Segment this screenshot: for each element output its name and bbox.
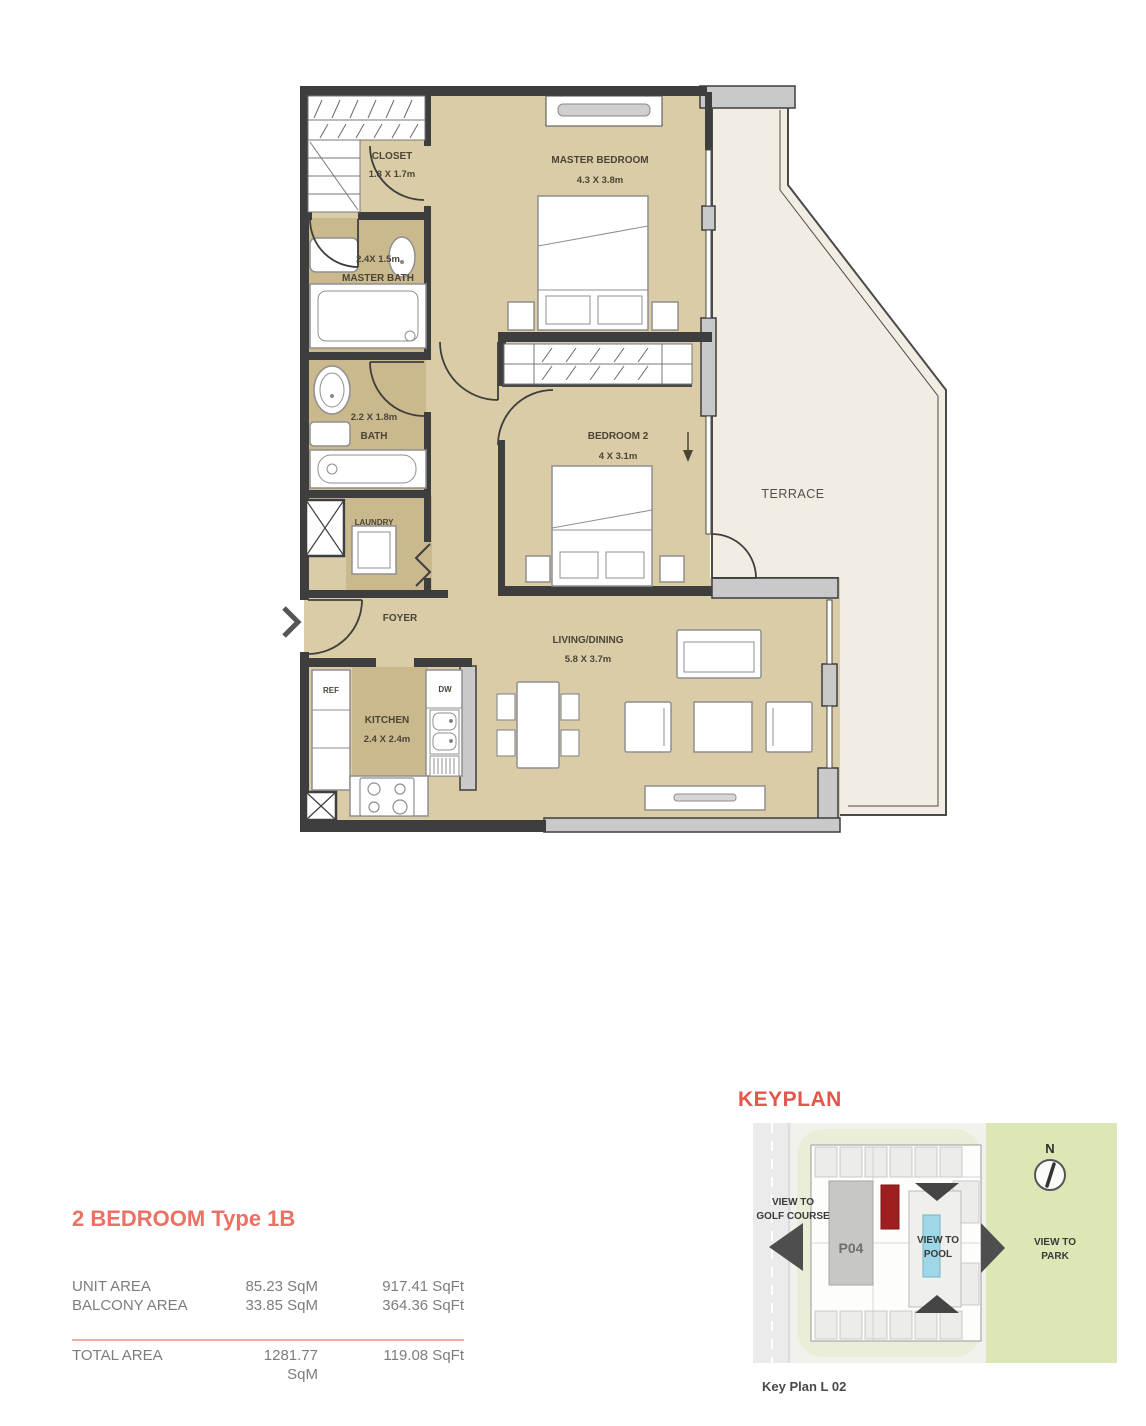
bath-label: BATH xyxy=(360,431,387,442)
window-master-1 xyxy=(706,150,711,206)
nightstand xyxy=(508,302,534,330)
unit-title: 2 BEDROOM Type 1B xyxy=(72,1206,295,1232)
window-living-2 xyxy=(827,706,832,768)
bedroom2-bed xyxy=(552,466,652,586)
bath-dims: 2.2 X 1.8m xyxy=(351,412,397,423)
window-master-2 xyxy=(706,230,711,318)
area-row-unit: UNIT AREA 85.23 SqM 917.41 SqFt xyxy=(72,1277,464,1296)
unit-area-sqft: 917.41 SqFt xyxy=(318,1277,464,1296)
master-bed xyxy=(538,196,648,330)
armchair xyxy=(625,702,671,752)
balcony-area-sqm: 33.85 SqM xyxy=(240,1296,318,1315)
unit-area-label: UNIT AREA xyxy=(72,1277,240,1296)
living-dining-label: LIVING/DINING xyxy=(552,635,623,646)
building-code-label: P04 xyxy=(839,1240,864,1256)
total-area-sqm: 1281.77 SqM xyxy=(240,1346,318,1384)
keyplan-title: KEYPLAN xyxy=(738,1088,842,1112)
living-dining-dims: 5.8 X 3.7m xyxy=(565,654,611,665)
entry-arrow-icon xyxy=(284,608,298,636)
keyplan-caption: Key Plan L 02 xyxy=(762,1379,846,1394)
floor-plan: CLOSET 1.8 X 1.7m MASTER BEDROOM 4.3 X 3… xyxy=(280,80,970,836)
keyplan-core-block xyxy=(829,1181,873,1285)
bedroom2-wardrobe xyxy=(504,344,692,384)
kitchen-sink xyxy=(430,710,459,754)
view-park-label-1: VIEW TO xyxy=(1034,1237,1076,1248)
nightstand xyxy=(526,556,550,582)
view-golf-label-1: VIEW TO xyxy=(772,1197,814,1208)
unit-area-sqm: 85.23 SqM xyxy=(240,1277,318,1296)
total-area-sqft: 119.08 SqFt xyxy=(318,1346,464,1384)
bedroom2-dims: 4 X 3.1m xyxy=(599,451,638,462)
keyplan-pool xyxy=(923,1215,940,1277)
kitchen-drainer xyxy=(430,756,459,776)
view-pool-label-2: POOL xyxy=(924,1249,952,1260)
master-bath-label: MASTER BATH xyxy=(342,273,414,284)
coffee-table xyxy=(694,702,752,752)
view-golf-label-2: GOLF COURSE xyxy=(756,1211,830,1222)
closet-dims: 1.8 X 1.7m xyxy=(369,169,415,180)
nightstand xyxy=(660,556,684,582)
balcony-area-label: BALCONY AREA xyxy=(72,1296,240,1315)
foyer-label: FOYER xyxy=(383,613,418,624)
total-area-label: TOTAL AREA xyxy=(72,1346,240,1384)
keyplan-map: P04 VIEW TO GOLF COURSE VIEW TO POOL VIE… xyxy=(753,1123,1117,1363)
view-pool-label-1: VIEW TO xyxy=(917,1235,959,1246)
dishwasher-label: DW xyxy=(438,685,452,694)
armchair xyxy=(766,702,812,752)
kitchen-label: KITCHEN xyxy=(365,715,409,726)
area-row-balcony: BALCONY AREA 33.85 SqM 364.36 SqFt xyxy=(72,1296,464,1315)
tv-console xyxy=(645,786,765,810)
area-table: UNIT AREA 85.23 SqM 917.41 SqFt BALCONY … xyxy=(72,1277,464,1384)
stove xyxy=(360,778,414,816)
laundry-label: LAUNDRY xyxy=(355,518,394,527)
kitchen-dims: 2.4 X 2.4m xyxy=(364,734,410,745)
master-bath-dims: 2.4X 1.5m xyxy=(356,254,400,265)
window-bedroom2 xyxy=(706,416,711,534)
terrace-parapet xyxy=(700,86,795,108)
bedroom2-label: BEDROOM 2 xyxy=(588,431,649,442)
brochure-page: CLOSET 1.8 X 1.7m MASTER BEDROOM 4.3 X 3… xyxy=(0,0,1146,1426)
terrace-label: TERRACE xyxy=(761,487,824,501)
area-row-total: TOTAL AREA 1281.77 SqM 119.08 SqFt xyxy=(72,1339,464,1384)
terrace-threshold xyxy=(712,578,838,598)
sofa xyxy=(677,630,761,678)
nightstand xyxy=(652,302,678,330)
closet-label: CLOSET xyxy=(372,151,413,162)
window-living-1 xyxy=(827,600,832,664)
master-bedroom-dims: 4.3 X 3.8m xyxy=(577,175,623,186)
north-label: N xyxy=(1045,1141,1054,1156)
fridge-label: REF xyxy=(323,686,339,695)
view-park-label-2: PARK xyxy=(1041,1251,1069,1262)
master-bedroom-label: MASTER BEDROOM xyxy=(551,155,648,166)
washer xyxy=(352,526,396,574)
balcony-area-sqft: 364.36 SqFt xyxy=(318,1296,464,1315)
keyplan-highlighted-unit xyxy=(881,1185,899,1229)
